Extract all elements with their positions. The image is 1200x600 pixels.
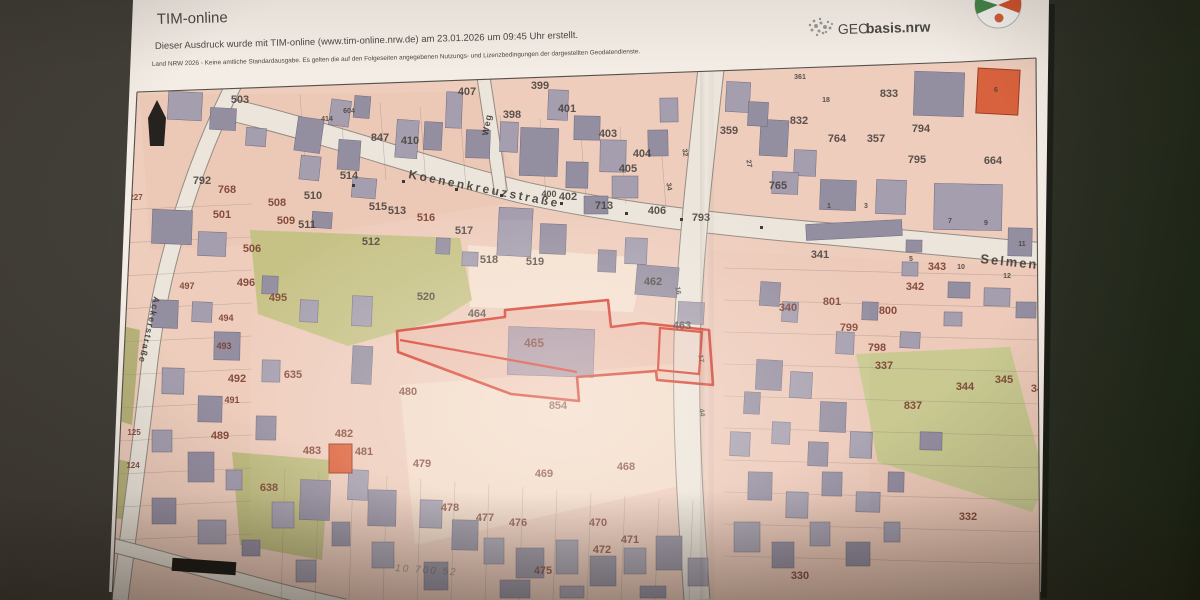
parcel-label-464: 464 [468,308,487,320]
building [368,490,397,526]
parcel-label-404: 404 [633,148,652,160]
building [245,127,266,146]
app-title: TIM-online [157,9,228,28]
parcel-label-494: 494 [218,313,233,323]
parcel-label-399: 399 [531,80,549,92]
parcel-label-401: 401 [558,103,576,115]
building [198,520,226,544]
building [755,359,783,390]
parcel-label-124: 124 [126,461,140,470]
building [332,522,350,546]
parcel-label-847: 847 [371,132,389,144]
building [624,548,646,574]
parcel-label-495: 495 [269,292,287,304]
parcel-label-604: 604 [343,108,355,115]
parcel-label-837: 837 [904,400,922,412]
building [888,472,904,492]
parcel-label-503: 503 [231,94,249,106]
parcel-label-506: 506 [243,243,261,255]
parcel-label-798: 798 [868,342,886,354]
parcel-label-765: 765 [769,180,787,192]
paper-crease [700,55,714,600]
building [152,498,176,524]
parcel-label-516: 516 [417,212,435,224]
parcel-label-463: 463 [673,320,691,332]
parcel-label-519: 519 [526,256,544,268]
building [188,452,214,482]
parcel-label-12: 12 [1003,273,1011,280]
building [900,332,921,349]
building [351,346,373,385]
building [560,586,584,598]
parcel-label-664: 664 [984,155,1003,167]
building [1016,302,1036,318]
building [846,542,870,566]
building [748,472,772,500]
building [353,95,371,118]
parcel-label-477: 477 [476,512,494,524]
parcel-label-795: 795 [908,154,926,166]
dot [819,18,821,20]
orange-building-bottom-left [329,444,352,473]
parcel-label-513: 513 [388,205,406,217]
parcel-label-7: 7 [948,218,952,225]
building [242,540,260,556]
building [772,542,794,568]
building [590,556,616,586]
parcel-label-1: 1 [827,203,831,210]
parcel-label-794: 794 [912,123,931,135]
parcel-label-337: 337 [875,360,893,372]
building [822,472,842,496]
parcel-label-518: 518 [480,254,498,266]
parcel-label-515: 515 [369,201,387,213]
building [862,302,879,321]
building [372,542,394,568]
parcel-label-478: 478 [441,502,459,514]
building [351,296,372,327]
dot [809,24,812,27]
building [192,302,213,323]
building [920,432,942,450]
parcel-label-799: 799 [840,322,858,334]
parcel-label-407: 407 [458,86,476,98]
building [262,360,280,382]
parcel-label-16: 16 [673,286,681,295]
parcel-label-833: 833 [880,88,898,100]
building [743,392,760,415]
building [420,500,442,528]
building [256,416,276,440]
building [198,396,222,422]
parcel-label-501: 501 [213,209,231,221]
parcel-label-638: 638 [260,482,278,494]
building [500,580,530,598]
parcel-label-510: 510 [304,190,322,202]
dot [829,27,832,30]
building [772,422,791,445]
building [299,155,321,181]
parcel-label-514: 514 [340,170,359,182]
parcel-label-398: 398 [503,109,521,121]
parcel-label-517: 517 [455,225,473,237]
building [656,536,682,570]
parcel-label-342: 342 [906,281,924,293]
building [884,522,900,542]
parcel-label-481: 481 [355,446,373,458]
parcel-label-405: 405 [619,163,637,175]
parcel-label-470: 470 [589,517,607,529]
parcel-label-332: 332 [959,511,977,523]
parcel-label-3: 3 [864,203,868,210]
building [167,91,202,121]
building [747,101,768,126]
parcel-label-635: 635 [284,369,302,381]
dot [822,32,825,35]
building [913,71,965,117]
parcel-label-340: 340 [779,302,797,314]
brand-bold-text: basis.nrw [866,19,931,37]
parcel-label-9: 9 [984,220,988,227]
building [294,116,324,153]
building [300,300,319,323]
parcel-label-345: 345 [995,374,1013,386]
parcel-label-491: 491 [224,395,239,405]
building [151,209,192,244]
parcel-label-469: 469 [535,468,553,480]
parcel-label-832: 832 [790,115,808,127]
dot [823,25,827,29]
dot [814,24,818,28]
building [152,430,172,452]
parcel-label-34: 34 [664,182,672,191]
dot [831,23,833,25]
parcel-label-410: 410 [401,135,419,147]
dot [813,20,816,23]
parcel-label-344: 344 [956,381,975,393]
parcel-label-508: 508 [268,197,286,209]
geobasis-brand: GEO basis.nrw [838,19,931,37]
dot [820,22,823,25]
photo-of-printed-map: 5034073993984014034044054024007134063597… [0,0,1200,600]
building [660,98,678,122]
building [198,232,227,257]
parcel-label-6: 6 [994,87,998,94]
building [836,332,855,355]
dot [827,21,829,23]
building [566,162,588,188]
parcel-label-479: 479 [413,458,431,470]
building [875,179,906,214]
building [725,81,751,112]
parcel-label-483: 483 [303,445,321,457]
building [944,312,962,326]
parcel-label-480: 480 [399,386,417,398]
dot [816,34,818,36]
parcel-label-406: 406 [648,205,666,217]
parcel-label-512: 512 [362,236,380,248]
parcel-label-472: 472 [593,544,611,556]
parcel-label-330: 330 [791,570,809,582]
dot [825,31,827,33]
parcel-label-497: 497 [179,281,194,291]
building [539,224,566,255]
building [906,240,922,252]
building [423,122,442,151]
map-area: 5034073993984014034044054024007134063597… [98,40,1060,600]
building [226,470,242,490]
parcel-label-465: 465 [524,336,544,350]
building [808,442,829,467]
parcel-label-482: 482 [335,428,353,440]
parcel-label-493: 493 [216,341,231,351]
parcel-label-509: 509 [277,215,295,227]
building [819,179,856,210]
building [810,522,830,546]
parcel-label-764: 764 [828,133,847,145]
building [789,371,812,398]
parcel-label-801: 801 [823,296,841,308]
parcel-label-520: 520 [417,291,435,303]
parcel-label-496: 496 [237,277,255,289]
building [162,368,184,394]
parcel-label-854: 854 [549,400,568,412]
parcel-label-27: 27 [744,159,752,168]
parcel-label-11: 11 [1018,241,1026,248]
building [759,281,781,306]
parcel-label-361: 361 [794,74,806,81]
building [452,520,479,550]
building [934,183,1003,230]
brand-geo-text: GEO [838,20,870,37]
building [598,250,617,273]
building [612,176,638,198]
building [296,560,316,582]
parcel-label-511: 511 [298,219,316,231]
parcel-label-359: 359 [720,125,738,137]
building [625,238,648,265]
building [850,432,873,459]
dot [811,29,814,32]
building [299,479,330,520]
parcel-label-414: 414 [321,116,333,123]
building [499,122,518,153]
building [574,116,600,140]
building [337,139,361,170]
parcel-label-5: 5 [909,256,913,263]
parcel-label-402: 402 [559,191,577,203]
parcel-label-343: 343 [928,261,946,273]
building [734,522,760,552]
dot [818,30,821,33]
building [556,540,578,574]
building [948,282,970,298]
parcel-label-18: 18 [822,97,830,104]
building [856,492,880,512]
parcel-label-341: 341 [811,249,829,261]
building [984,288,1010,306]
building [819,402,846,433]
parcel-label-768: 768 [218,184,236,196]
building [436,238,451,254]
parcel-label-357: 357 [867,133,885,145]
parcel-label-713: 713 [595,200,613,212]
parcel-label-468: 468 [617,461,635,473]
building [640,586,666,598]
parcel-label-462: 462 [644,276,662,288]
building [209,107,236,130]
parcel-label-403: 403 [599,128,617,140]
orange-building-top-right [976,68,1020,115]
parcel-label-475: 475 [534,565,552,577]
parcel-label-492: 492 [228,373,246,385]
parcel-label-476: 476 [509,517,527,529]
building [462,252,478,267]
parcel-label-10: 10 [957,264,965,271]
parcel-label-800: 800 [879,305,897,317]
building [497,207,533,257]
building [272,502,294,528]
building [347,470,368,501]
building [519,127,559,176]
parcel-label-32: 32 [680,148,688,157]
parcel-label-489: 489 [211,430,229,442]
parcel-label-125: 125 [127,428,141,437]
building [902,262,918,276]
parcel-label-792: 792 [193,175,211,187]
cadastral-map-canvas: 5034073993984014034044054024007134063597… [0,0,1200,600]
building [786,492,808,518]
building [730,432,751,457]
parcel-label-471: 471 [621,534,639,546]
building [484,538,504,564]
